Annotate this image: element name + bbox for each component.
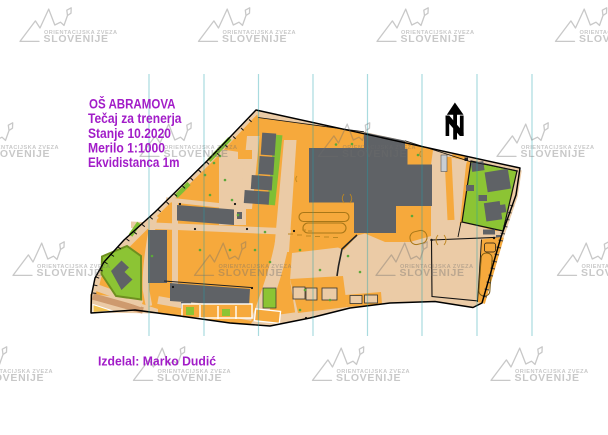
svg-text:Merilo 1:1000: Merilo 1:1000: [88, 140, 165, 155]
svg-text:Stanje 10.2020: Stanje 10.2020: [88, 126, 171, 141]
svg-text:Tečaj za trenerja: Tečaj za trenerja: [88, 111, 182, 126]
svg-text:Ekvidistanca 1m: Ekvidistanca 1m: [88, 155, 180, 170]
svg-text:OŠ ABRAMOVA: OŠ ABRAMOVA: [89, 97, 176, 112]
svg-text:Izdelal: Marko Dudić: Izdelal: Marko Dudić: [98, 355, 216, 369]
